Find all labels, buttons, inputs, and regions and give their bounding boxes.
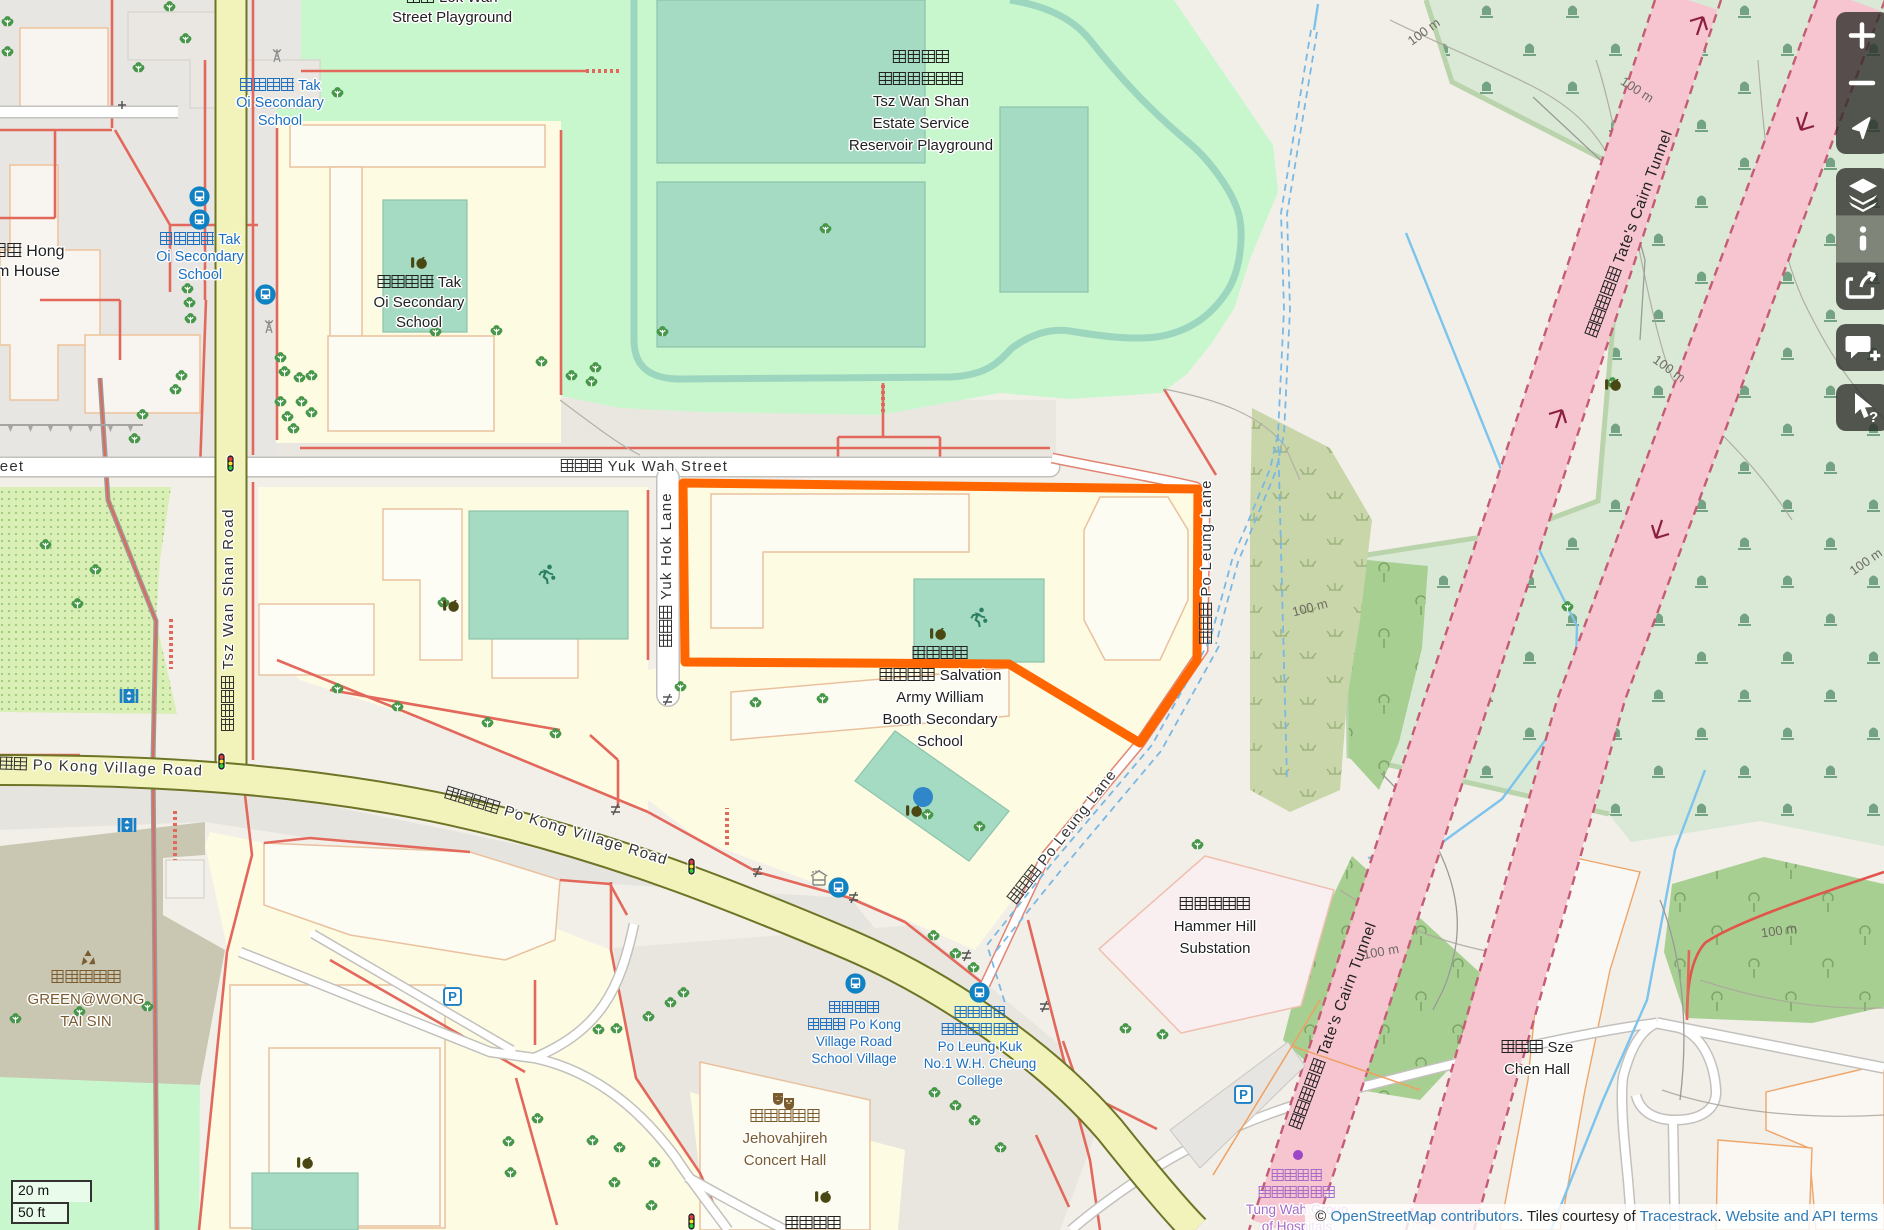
svg-text:?: ? xyxy=(1869,409,1878,426)
